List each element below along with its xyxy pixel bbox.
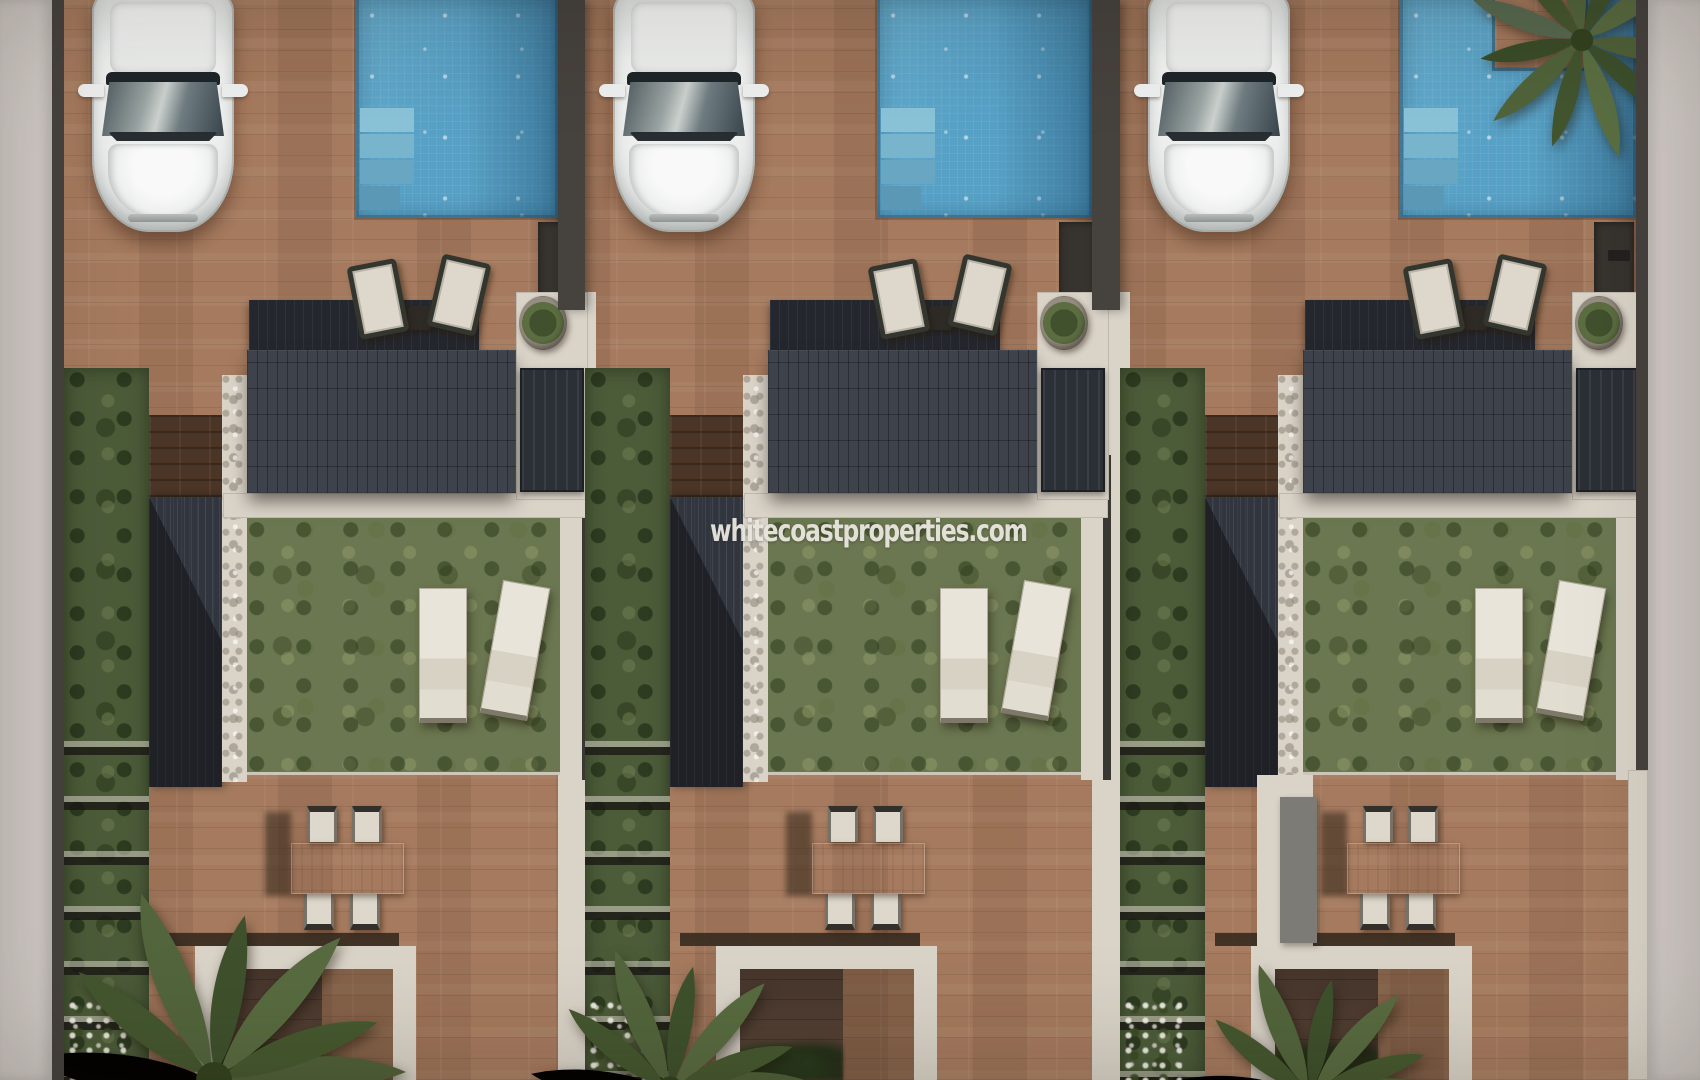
pool-step (881, 186, 921, 210)
parked-car (92, 0, 234, 232)
perimeter-wall-left (52, 0, 64, 1080)
dining-chair (825, 894, 855, 930)
pool-step (360, 186, 400, 210)
car-front-grille (128, 214, 198, 222)
sun-lounger (940, 588, 988, 723)
skylight-ribs (149, 497, 222, 787)
car-windshield (102, 82, 224, 136)
dark-wood-deck (670, 415, 743, 497)
car-front-grille (1184, 214, 1254, 222)
aerial-villa-render: whitecoastproperties.com (0, 0, 1700, 1080)
outdoor-dining-table (1347, 843, 1460, 894)
stair-skylight-wedge (1205, 497, 1278, 787)
pool-step (360, 160, 414, 184)
solar-panel-array (1576, 368, 1640, 492)
outside-ground-left (0, 0, 52, 1080)
skylight-ribs (1205, 497, 1278, 787)
solar-panel-array (520, 368, 584, 492)
car-roof (631, 2, 737, 74)
pool-steps (360, 108, 414, 214)
party-wall (558, 0, 585, 310)
pool-deep-end (993, 0, 1092, 218)
stone-walkway (743, 375, 768, 782)
pool-step (360, 134, 414, 158)
pool-step (360, 108, 414, 132)
perimeter-walkway (1628, 770, 1648, 1080)
car-front-grille (649, 214, 719, 222)
watermark-text: whitecoastproperties.com (710, 514, 1027, 549)
dining-chair (1406, 894, 1436, 930)
dining-chair (307, 806, 337, 842)
bottom-path-vertical (1449, 969, 1472, 1080)
car-mirror-right (222, 84, 248, 97)
swimming-pool (877, 0, 1092, 218)
parked-car (613, 0, 755, 232)
dining-chair (828, 806, 858, 842)
sun-lounger (419, 588, 467, 723)
bottom-path-vertical (914, 969, 937, 1080)
stone-walkway (1278, 375, 1303, 782)
outdoor-dining-table (812, 843, 925, 894)
car-windshield (1158, 82, 1280, 136)
stone-walkway (222, 375, 247, 782)
solar-panel-array (1041, 368, 1105, 492)
wall-shadow (786, 812, 812, 896)
car-roof (1166, 2, 1272, 74)
potted-plant (1575, 296, 1623, 350)
pool-steps (881, 108, 935, 214)
car-wiper-bar (108, 132, 218, 141)
car-windshield (623, 82, 745, 136)
shaded-patio (843, 969, 914, 1080)
car-mirror-left (1134, 84, 1160, 97)
pool-step (1404, 160, 1458, 184)
wall-shadow (1321, 812, 1347, 896)
stair-skylight-wedge (149, 497, 222, 787)
pool-step (1404, 186, 1444, 210)
car-hood (108, 144, 218, 218)
swimming-pool (356, 0, 558, 218)
pool-step (881, 108, 935, 132)
party-wall (1092, 0, 1120, 310)
dining-chair (1408, 806, 1438, 842)
dining-chair (352, 806, 382, 842)
tiled-roof (768, 350, 1037, 493)
dining-chair (873, 806, 903, 842)
dark-wood-deck (149, 415, 222, 497)
palm-tree (520, 940, 820, 1080)
terrace-chair (1482, 253, 1547, 336)
perimeter-wall-right (1636, 0, 1648, 770)
lawn-side-path (1081, 493, 1103, 780)
dining-chair (1360, 894, 1390, 930)
car-hood (1164, 144, 1274, 218)
sun-lounger (1475, 588, 1523, 723)
potted-plant (1040, 296, 1088, 350)
pool-step (881, 160, 935, 184)
car-mirror-left (78, 84, 104, 97)
terrace-chair (947, 253, 1012, 336)
car-wiper-bar (629, 132, 739, 141)
car-mirror-right (743, 84, 769, 97)
villa-plot-3 (1120, 0, 1636, 1080)
dining-chair (1363, 806, 1393, 842)
entrance-door-handle (1608, 250, 1630, 261)
terrace-chair (426, 253, 491, 336)
lawn-side-path (560, 493, 582, 780)
car-roof (110, 2, 216, 74)
car-mirror-right (1278, 84, 1304, 97)
tiled-roof (247, 350, 516, 493)
villa-plot-1 (64, 0, 558, 1080)
palm-tree (1170, 955, 1450, 1080)
outdoor-kitchen-block (1280, 797, 1317, 943)
dining-chair (871, 894, 901, 930)
parked-car (1148, 0, 1290, 232)
outside-ground-right (1648, 0, 1700, 1080)
pool-step (1404, 134, 1458, 158)
car-wiper-bar (1164, 132, 1274, 141)
car-mirror-left (599, 84, 625, 97)
tiled-roof (1303, 350, 1572, 493)
lawn-side-path (1616, 493, 1638, 780)
pool-step (1404, 108, 1458, 132)
patio-wall-shadow (1215, 933, 1455, 946)
pool-step (881, 134, 935, 158)
car-hood (629, 144, 739, 218)
dark-wood-deck (1205, 415, 1278, 497)
pool-steps (1404, 108, 1458, 214)
pool-deep-end (465, 0, 558, 218)
palm-tree (14, 880, 414, 1080)
entrance-door-mat (1594, 222, 1634, 302)
